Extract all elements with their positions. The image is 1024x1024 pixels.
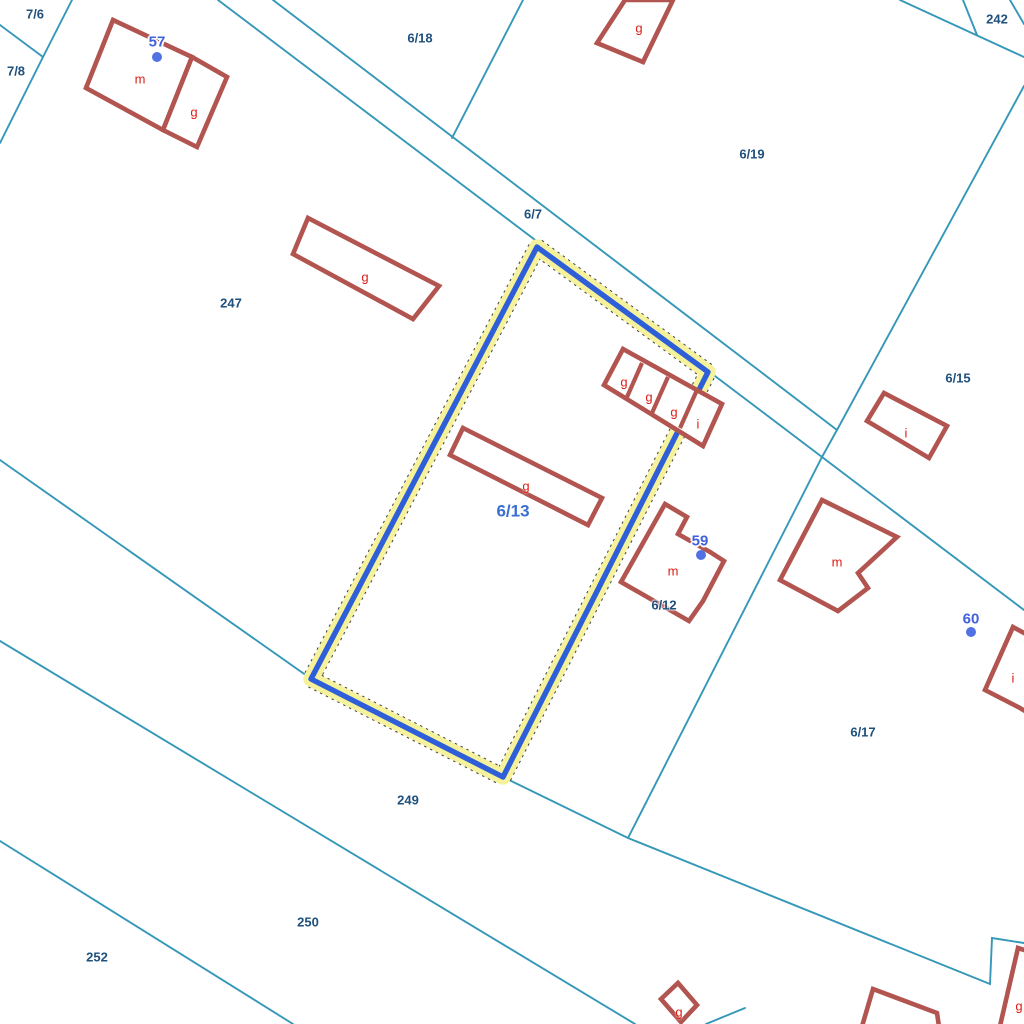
parcel-label-250: 250 xyxy=(297,916,319,929)
house-marker-dot-59 xyxy=(696,550,706,560)
parcel-label-7-8: 7/8 xyxy=(7,65,25,78)
building-letter-m: m xyxy=(832,556,843,569)
parcel-label-247: 247 xyxy=(220,297,242,310)
parcel-boundary-line xyxy=(0,25,43,57)
road-edge-line xyxy=(273,0,837,430)
building-letter-m: m xyxy=(668,565,679,578)
parcel-boundary-line xyxy=(628,86,1024,838)
building-letter-g: g xyxy=(361,271,368,284)
parcel-label-249: 249 xyxy=(397,794,419,807)
parcel-boundary-line xyxy=(1010,0,1024,24)
house-marker-dot-57 xyxy=(152,52,162,62)
building-letter-g: g xyxy=(522,480,529,493)
house-number-label-59: 59 xyxy=(692,534,709,549)
parcel-label-6-17: 6/17 xyxy=(850,726,875,739)
parcel-boundary-line xyxy=(0,841,293,1024)
parcel-boundary-line xyxy=(900,0,1024,57)
building-outline-barn-247 xyxy=(293,218,439,319)
building-letter-i: i xyxy=(697,418,700,431)
building-letter-g: g xyxy=(190,106,197,119)
parcel-boundary-line xyxy=(452,0,523,138)
parcel-label-6-7: 6/7 xyxy=(524,208,542,221)
house-marker-dot-60 xyxy=(966,627,976,637)
parcel-label-6-19: 6/19 xyxy=(739,148,764,161)
building-outline-bottom-middle xyxy=(858,989,941,1024)
building-letter-g: g xyxy=(635,22,642,35)
building-letter-g: g xyxy=(675,1006,682,1019)
buildings-layer xyxy=(86,0,1024,1024)
parcel-label-7-6: 7/6 xyxy=(26,8,44,21)
building-letter-i: i xyxy=(1012,672,1015,685)
parcel-boundary-line xyxy=(706,1008,745,1024)
parcel-label-6-12: 6/12 xyxy=(651,599,676,612)
building-letter-g: g xyxy=(645,391,652,404)
parcel-label-242: 242 xyxy=(986,13,1008,26)
building-letter-g: g xyxy=(670,406,677,419)
building-letter-g: g xyxy=(620,376,627,389)
building-letter-i: i xyxy=(905,427,908,440)
building-letter-m: m xyxy=(135,73,146,86)
map-canvas: 7/67/86/186/76/192422476/156/136/126/172… xyxy=(0,0,1024,1024)
parcel-label-6-18: 6/18 xyxy=(407,32,432,45)
parcel-label-6-15: 6/15 xyxy=(945,372,970,385)
selected-parcel-label-6-13[interactable]: 6/13 xyxy=(496,503,529,520)
house-number-label-57: 57 xyxy=(149,35,166,50)
building-letter-g: g xyxy=(1015,1000,1022,1013)
parcel-label-252: 252 xyxy=(86,951,108,964)
building-outline-i-bottom-right xyxy=(985,627,1024,720)
house-number-label-60: 60 xyxy=(963,612,980,627)
